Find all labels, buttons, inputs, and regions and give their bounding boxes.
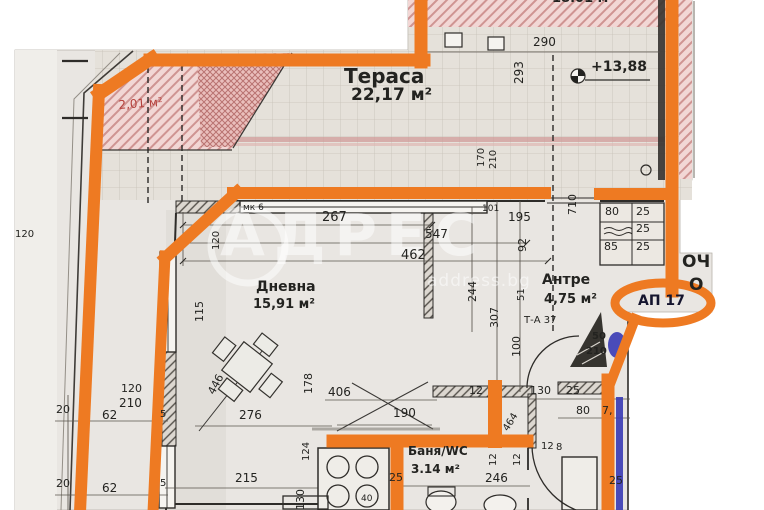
dim-464: 464: [502, 412, 521, 433]
dim-547: 547: [425, 228, 448, 240]
room-bath-area: 3.14 м²: [411, 463, 460, 475]
dim-115: 115: [194, 301, 205, 322]
dim-7: 7,: [602, 405, 613, 416]
dim-25-bath: 25: [389, 472, 403, 483]
dim-80-a: 80: [576, 405, 590, 416]
note-101: 101: [482, 205, 499, 214]
dim-276: 276: [239, 409, 262, 421]
closet-25-a: 25: [636, 206, 650, 217]
dim-246: 246: [485, 472, 508, 484]
dim-130-b: 130: [530, 385, 551, 396]
dim-307: 307: [489, 307, 500, 328]
room-hall-area: 4,75 м²: [544, 293, 597, 306]
dim-20-b: 20: [56, 478, 70, 489]
dim-5-a: 5: [160, 410, 166, 420]
closet-25-c: 25: [636, 241, 650, 252]
dim-170: 170: [477, 148, 487, 167]
note-ta37: Т-А 37: [524, 316, 556, 326]
dim-12-a: 12: [469, 385, 483, 396]
dim-178: 178: [303, 373, 314, 394]
dim-120-a: 120: [121, 383, 142, 394]
dim-12-rot-a: 12: [489, 453, 499, 466]
note-mk6: мк 6: [243, 204, 264, 213]
dim-51: 51: [517, 288, 527, 301]
dim-120-margin: 120: [15, 230, 34, 240]
dim-25-c: 25: [609, 475, 623, 486]
dim-5-b: 5: [160, 479, 166, 489]
dim-124: 124: [302, 442, 312, 461]
dim-92: 92: [517, 238, 528, 252]
dim-100: 100: [511, 336, 522, 357]
room-living-name: Дневна: [256, 280, 316, 294]
dim-40: 40: [361, 495, 372, 504]
dim-215: 215: [235, 472, 258, 484]
dim-210-a: 210: [119, 397, 142, 409]
floor-plan-canvas: 18.01 м² Тераса 22,17 м² 2,01 м² +13,88 …: [0, 0, 764, 510]
dim-25-a: 25: [566, 385, 580, 396]
door-height-210: 210: [586, 347, 607, 357]
dim-267: 267: [322, 211, 347, 224]
room-hall-name: Антре: [542, 273, 590, 287]
annotation-layer: 18.01 м² Тераса 22,17 м² 2,01 м² +13,88 …: [0, 0, 764, 510]
dim-190: 190: [393, 407, 416, 419]
dim-120-wall: 120: [212, 231, 222, 250]
room-terrace-name: Тераса: [344, 66, 424, 86]
dim-293: 293: [513, 61, 525, 84]
neighbor-area-label: 18.01 м²: [552, 0, 614, 5]
dim-12-rot-b: 12: [513, 453, 523, 466]
room-living-area: 15,91 м²: [253, 298, 315, 311]
niche-area-label: 2,01 м²: [118, 96, 163, 111]
closet-80: 80: [605, 206, 619, 217]
cutoff-text-fragment-2: О: [689, 277, 703, 294]
dim-130-rot: 130: [295, 489, 306, 510]
dim-62-b: 62: [102, 482, 117, 494]
dim-8: 8: [556, 443, 562, 453]
elevation-value: +13,88: [591, 60, 647, 74]
room-terrace-area: 22,17 м²: [351, 87, 432, 104]
dim-244: 244: [467, 281, 478, 302]
dim-446: 446: [206, 372, 226, 396]
closet-25-b: 25: [636, 223, 650, 234]
dim-62-a: 62: [102, 409, 117, 421]
apartment-badge: АП 17: [638, 294, 685, 308]
closet-85: 85: [604, 241, 618, 252]
dim-12-b: 12: [541, 442, 554, 452]
dim-710: 710: [567, 194, 578, 215]
dim-20-a: 20: [56, 404, 70, 415]
dim-290: 290: [533, 36, 556, 48]
dim-195: 195: [508, 211, 531, 223]
door-width-50: 50: [592, 332, 606, 342]
dim-462: 462: [401, 249, 426, 262]
dim-406: 406: [328, 386, 351, 398]
room-bath-name: Баня/WC: [408, 445, 468, 457]
dim-210-terrace: 210: [489, 150, 499, 169]
cutoff-text-fragment-1: ОЧ: [682, 254, 710, 271]
